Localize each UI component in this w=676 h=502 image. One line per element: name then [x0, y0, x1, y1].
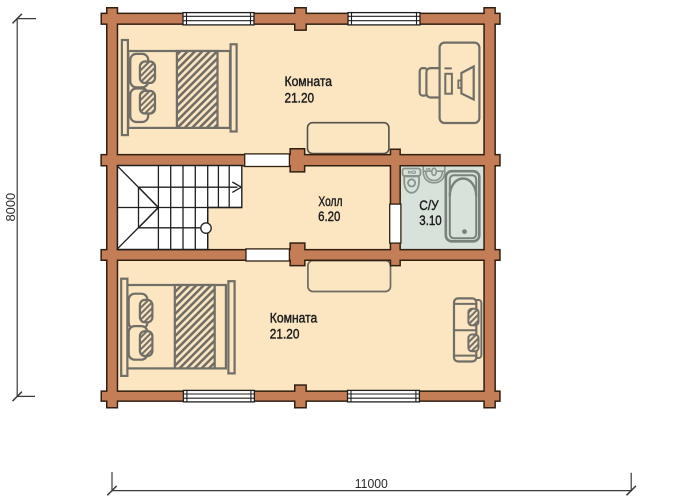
- svg-text:Комната: Комната: [285, 74, 333, 89]
- svg-text:С/У: С/У: [419, 198, 439, 213]
- svg-text:Комната: Комната: [270, 310, 318, 325]
- svg-text:21.20: 21.20: [270, 327, 300, 342]
- svg-text:3.10: 3.10: [419, 213, 441, 228]
- svg-text:Холл: Холл: [318, 194, 342, 209]
- svg-text:11000: 11000: [355, 477, 388, 491]
- svg-text:21.20: 21.20: [285, 90, 315, 105]
- svg-text:6.20: 6.20: [318, 209, 340, 224]
- svg-text:8000: 8000: [4, 193, 18, 222]
